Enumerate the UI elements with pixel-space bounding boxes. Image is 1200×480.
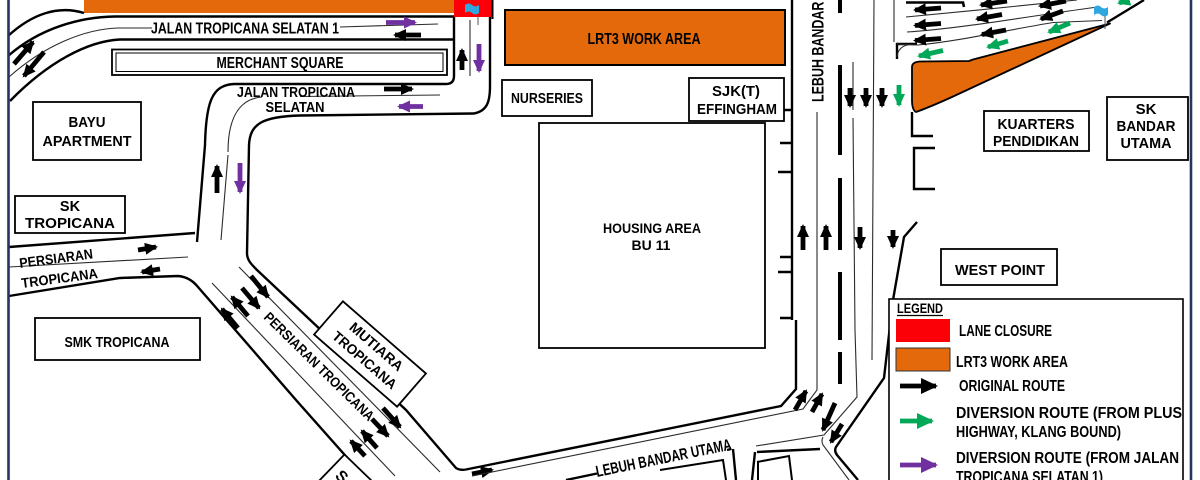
svg-text:LRT3 WORK AREA: LRT3 WORK AREA — [956, 354, 1068, 371]
svg-text:SJK(T): SJK(T) — [712, 83, 760, 100]
svg-text:HOUSING AREA: HOUSING AREA — [603, 220, 701, 236]
svg-text:SMK TROPICANA: SMK TROPICANA — [65, 334, 170, 351]
svg-text:LANE CLOSURE: LANE CLOSURE — [959, 323, 1052, 340]
svg-text:SK: SK — [1136, 101, 1157, 118]
svg-text:UTAMA: UTAMA — [1121, 135, 1172, 152]
svg-text:PENDIDIKAN: PENDIDIKAN — [993, 133, 1079, 150]
svg-text:KUARTERS: KUARTERS — [998, 116, 1075, 133]
svg-text:TROPICANA: TROPICANA — [25, 216, 116, 232]
svg-text:APARTMENT: APARTMENT — [43, 133, 132, 150]
svg-text:MERCHANT SQUARE: MERCHANT SQUARE — [217, 55, 344, 72]
svg-text:BANDAR: BANDAR — [1117, 118, 1176, 135]
svg-text:WEST POINT: WEST POINT — [955, 262, 1045, 279]
svg-text:ORIGINAL ROUTE: ORIGINAL ROUTE — [959, 378, 1065, 395]
svg-text:LRT3 WORK AREA: LRT3 WORK AREA — [588, 31, 701, 48]
svg-text:SELATAN: SELATAN — [266, 99, 325, 116]
svg-text:LEBUH BANDAR UTAMA: LEBUH BANDAR UTAMA — [809, 0, 828, 102]
svg-text:DIVERSION ROUTE (FROM JALAN: DIVERSION ROUTE (FROM JALAN — [956, 450, 1179, 467]
svg-text:NURSERIES: NURSERIES — [511, 90, 583, 107]
svg-text:LEGEND: LEGEND — [897, 300, 943, 316]
svg-text:DIVERSION ROUTE (FROM PLUS: DIVERSION ROUTE (FROM PLUS — [956, 405, 1182, 422]
svg-text:BAYU: BAYU — [69, 114, 106, 131]
svg-text:TROPICANA SELATAN 1): TROPICANA SELATAN 1) — [956, 469, 1103, 480]
svg-text:SK: SK — [60, 199, 81, 215]
svg-text:EFFINGHAM: EFFINGHAM — [697, 101, 777, 118]
svg-text:HIGHWAY, KLANG BOUND): HIGHWAY, KLANG BOUND) — [956, 424, 1121, 441]
svg-text:BU 11: BU 11 — [632, 237, 671, 253]
svg-text:JALAN TROPICANA SELATAN 1: JALAN TROPICANA SELATAN 1 — [151, 21, 339, 38]
